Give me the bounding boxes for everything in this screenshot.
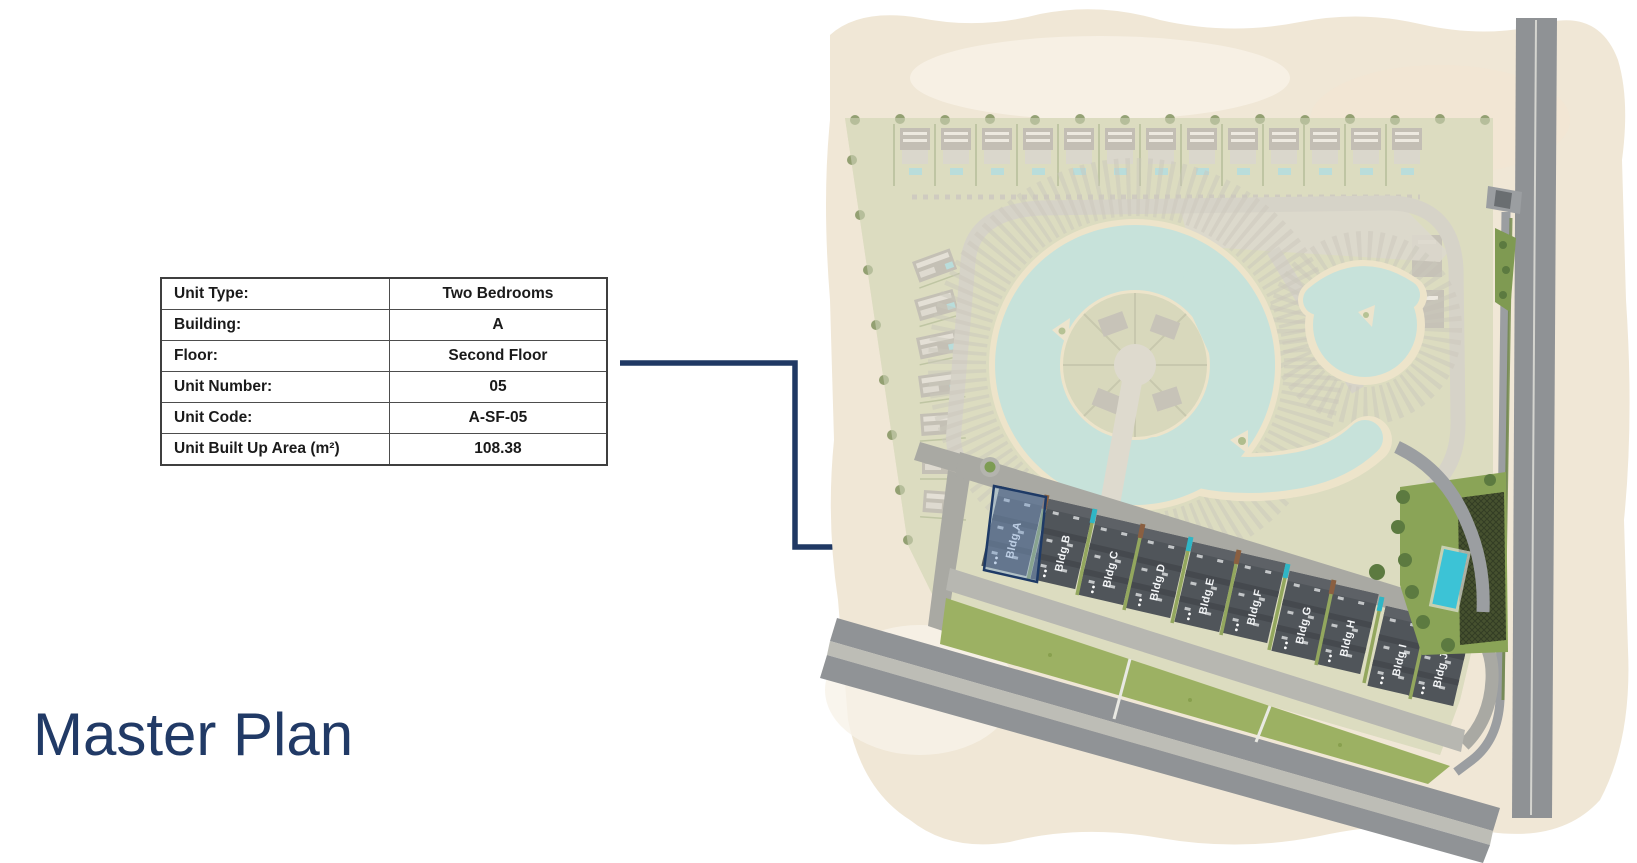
table-row: Unit Number:05 — [161, 372, 607, 403]
unit-attribute-label: Floor: — [161, 341, 389, 372]
unit-attribute-value: 05 — [389, 372, 607, 403]
unit-table-body: Unit Type:Two BedroomsBuilding:AFloor:Se… — [161, 278, 607, 465]
table-row: Unit Built Up Area (m²)108.38 — [161, 434, 607, 466]
table-row: Unit Type:Two Bedrooms — [161, 278, 607, 310]
unit-info-table: Unit Type:Two BedroomsBuilding:AFloor:Se… — [160, 277, 608, 466]
unit-attribute-label: Unit Number: — [161, 372, 389, 403]
entrance-gate — [1494, 190, 1512, 209]
unit-attribute-label: Unit Built Up Area (m²) — [161, 434, 389, 466]
unit-attribute-value: Second Floor — [389, 341, 607, 372]
unit-attribute-label: Unit Type: — [161, 278, 389, 310]
master-plan-map: Bldg A Bldg B Bldg C Bldg D Bldg E Bldg … — [800, 0, 1637, 863]
slide: Unit Type:Two BedroomsBuilding:AFloor:Se… — [0, 0, 1637, 863]
table-row: Unit Code:A-SF-05 — [161, 403, 607, 434]
page-title: Master Plan — [33, 700, 353, 769]
unit-attribute-value: Two Bedrooms — [389, 278, 607, 310]
unit-attribute-label: Building: — [161, 310, 389, 341]
unit-attribute-label: Unit Code: — [161, 403, 389, 434]
table-row: Building:A — [161, 310, 607, 341]
unit-attribute-value: 108.38 — [389, 434, 607, 466]
master-plan-art: Bldg A Bldg B Bldg C Bldg D Bldg E Bldg … — [800, 0, 1637, 863]
table-row: Floor:Second Floor — [161, 341, 607, 372]
unit-attribute-value: A — [389, 310, 607, 341]
selected-building-highlight — [984, 486, 1046, 582]
unit-attribute-value: A-SF-05 — [389, 403, 607, 434]
